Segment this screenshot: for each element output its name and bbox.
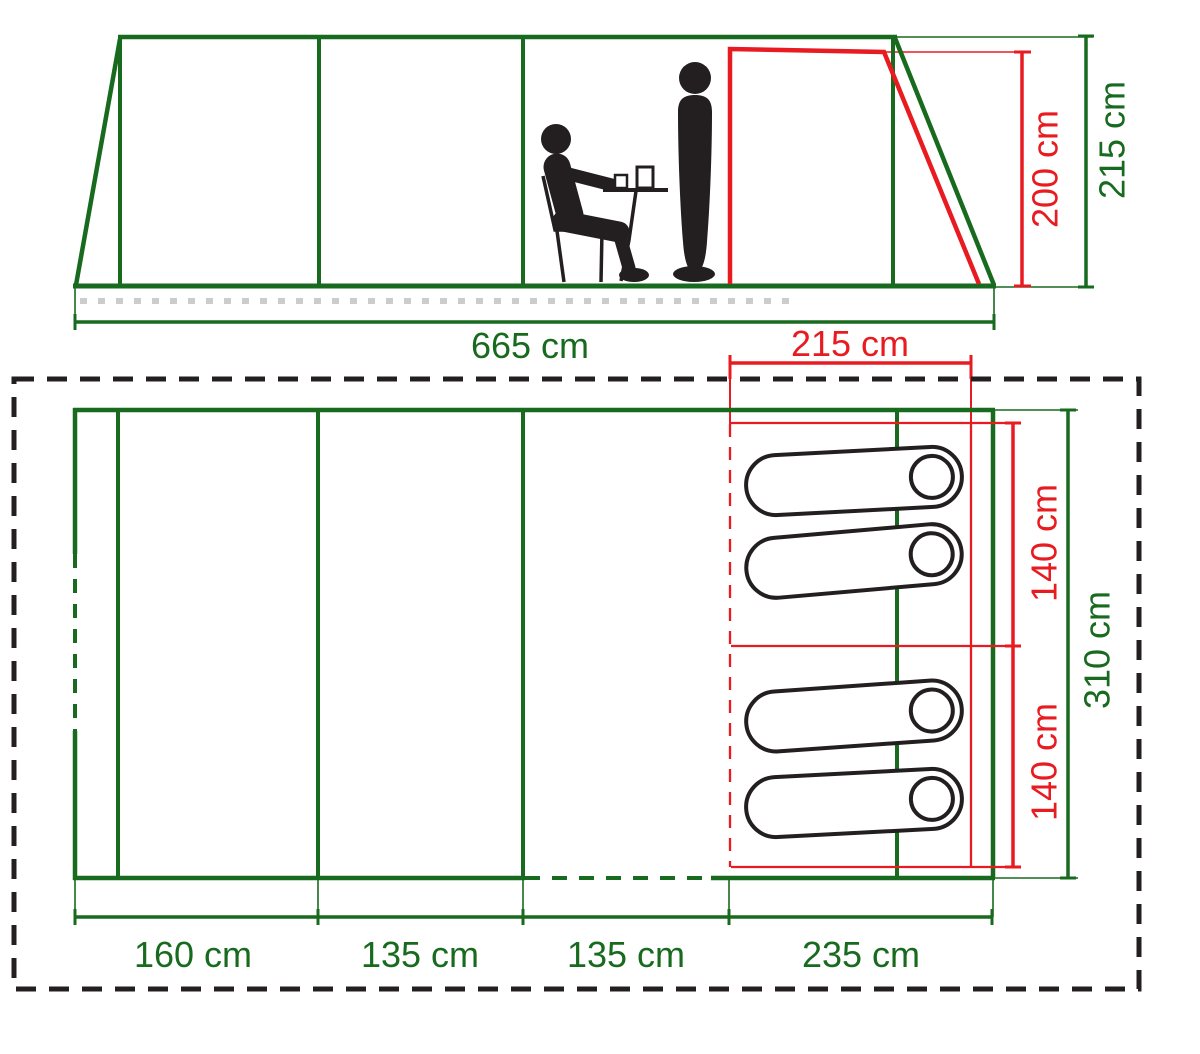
side-length-label: 665 cm (471, 325, 589, 366)
cup-icon (615, 175, 627, 188)
tent-dimension-diagram: 665 cm 215 cm 200 cm 215 cm (0, 0, 1200, 1054)
section-1-label: 160 cm (134, 934, 252, 975)
section-2-label: 135 cm (361, 934, 479, 975)
standing-person-icon (673, 62, 715, 282)
tent-height-label: 215 cm (1092, 81, 1133, 199)
cup-icon (637, 167, 653, 188)
side-elevation-view: 665 cm 215 cm 200 cm 215 cm (73, 36, 1133, 424)
section-4-label: 235 cm (802, 934, 920, 975)
diagram-canvas: 665 cm 215 cm 200 cm 215 cm (0, 0, 1200, 1054)
dim-floor-sections (75, 909, 992, 925)
section-3-label: 135 cm (567, 934, 685, 975)
door-width-label: 215 cm (791, 323, 909, 364)
floor-plan-view: 140 cm 140 cm 310 cm 160 cm 135 cm 135 c… (14, 379, 1139, 989)
sleeping-bag (744, 522, 964, 601)
sleeping-bag (745, 445, 964, 516)
sleeping-bag (744, 679, 964, 754)
sleeping-bags (744, 445, 964, 838)
bedroom-width-bottom-label: 140 cm (1024, 703, 1065, 821)
tent-side-outline (73, 37, 996, 286)
tent-width-label: 310 cm (1077, 591, 1118, 709)
left-slope (76, 39, 120, 285)
people-illustration (541, 62, 715, 282)
door-height-label: 200 cm (1025, 110, 1066, 228)
sleeping-bag (745, 767, 964, 838)
bedroom-width-top-label: 140 cm (1024, 484, 1065, 602)
dim-bedroom-widths-140 (1005, 423, 1021, 867)
dim-door-width-215 (730, 355, 971, 424)
door-frame (730, 49, 979, 284)
right-slope (895, 38, 994, 285)
